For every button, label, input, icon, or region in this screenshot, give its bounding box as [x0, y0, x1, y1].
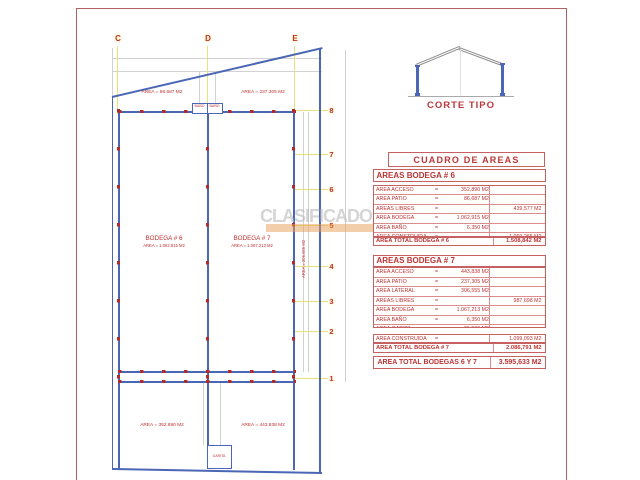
grand-total-value: 3.595,633 M2	[490, 357, 545, 368]
grid-number-6: 6	[325, 185, 338, 194]
table-cell: AREA ACCESO	[374, 269, 434, 275]
bodega-7-total-label: AREA TOTAL BODEGA # 7	[374, 344, 493, 352]
cuadro-de-areas-title: CUADRO DE AREAS	[388, 152, 545, 167]
corte-tipo-title: CORTE TIPO	[408, 100, 514, 111]
table-cell	[489, 186, 545, 195]
table-cell	[489, 224, 545, 233]
site-boundary-left	[112, 97, 113, 469]
banio-right-label: BAÑO	[208, 104, 222, 108]
column-markers-middle	[206, 109, 210, 381]
bodega-7-title: BODEGA # 7	[216, 235, 288, 242]
bodega-6-total-row: AREA TOTAL BODEGA # 6 1.508,842 M2	[373, 237, 546, 247]
table-row: AREA GARITA=25,530 M2	[374, 324, 545, 328]
table-cell: 443,838 M2	[440, 269, 489, 275]
grid-line-3	[295, 301, 328, 302]
table-cell: AREA BODEGA	[374, 215, 434, 221]
table-cell	[489, 306, 545, 315]
table-cell: AREAS LIBRES	[374, 298, 434, 304]
grand-total-row: AREA TOTAL BODEGAS 6 Y 7 3.595,633 M2	[373, 356, 546, 369]
table-cell: 6,350 M2	[440, 317, 489, 323]
table-row: AREA BAÑO=6,350 M2	[374, 223, 545, 233]
grid-letter-c: C	[111, 34, 125, 43]
table-cell: =	[433, 196, 440, 202]
table-cell: AREA PATIO	[374, 279, 434, 285]
table-row: AREA BAÑO=6,350 M2	[374, 315, 545, 325]
table-cell: AREAS LIBRES	[374, 206, 434, 212]
grid-letter-d: D	[201, 34, 215, 43]
area-lateral-label: AREA = 306.555 M2	[302, 233, 307, 285]
bodega-6-table: AREA ACCESO=352,890 M2AREA PATIO=86,687 …	[373, 185, 546, 237]
dimension-extension-line	[215, 72, 216, 103]
dimension-line	[112, 58, 322, 59]
grid-line-e	[294, 46, 295, 114]
column-markers-left	[117, 109, 121, 381]
lateral-strip-line	[308, 112, 309, 372]
garita-label: GARITA	[213, 454, 226, 458]
table-cell: 6,350 M2	[440, 225, 489, 231]
table-cell: =	[433, 298, 440, 304]
table-row: AREA PATIO=237,305 M2	[374, 277, 545, 287]
table-cell	[489, 316, 545, 325]
table-cell	[489, 214, 545, 223]
bodega-6-table-header: AREAS BODEGA # 6	[373, 169, 546, 183]
patio-reference-line	[203, 382, 204, 445]
table-cell: =	[433, 215, 440, 221]
grid-line-6	[295, 189, 328, 190]
table-cell: 1.099,093 M2	[489, 335, 545, 344]
area-patio-7-label: AREA = 237.305 M2	[226, 90, 300, 96]
bodega-6-total-value: 1.508,842 M2	[493, 238, 545, 246]
section-column-right	[501, 64, 504, 95]
site-boundary-right	[319, 49, 321, 473]
banio-left-cell: BAÑO	[193, 104, 208, 113]
table-cell: 25,530 M2	[440, 326, 489, 327]
table-cell: 439,577 M2	[489, 205, 545, 214]
grid-letter-e: E	[288, 34, 302, 43]
table-cell: 352,890 M2	[440, 187, 489, 193]
table-row: AREA LATERAL=306,555 M2	[374, 286, 545, 296]
grid-line-4	[295, 266, 328, 267]
grand-total-label: AREA TOTAL BODEGAS 6 Y 7	[374, 357, 490, 368]
table-cell: =	[433, 206, 440, 212]
table-cell: =	[433, 317, 440, 323]
drawing-page: C D E 8 7 6 5 4 3 2 1 BAÑO BAÑO GARITA A…	[0, 0, 640, 480]
table-cell	[489, 268, 545, 277]
grid-number-4: 4	[325, 262, 338, 271]
grid-number-7: 7	[325, 150, 338, 159]
section-column-right-cap	[500, 63, 505, 66]
area-patio-6-label: AREA = 86.687 M2	[128, 90, 196, 96]
area-acceso-7-label: AREA = 443.838 M2	[226, 423, 300, 429]
patio-reference-line	[220, 382, 221, 445]
grid-line-7	[295, 154, 328, 155]
table-cell: AREA ACCESO	[374, 187, 434, 193]
grid-number-1: 1	[325, 374, 338, 383]
area-acceso-6-label: AREA = 352.890 M2	[128, 423, 196, 429]
section-column-left	[416, 66, 419, 95]
column-markers-right	[292, 109, 296, 381]
table-cell: 987,698 M2	[489, 297, 545, 306]
table-cell: 237,305 M2	[440, 279, 489, 285]
table-cell: =	[433, 225, 440, 231]
bodega-7-total-row: AREA TOTAL BODEGA # 7 2.086,791 M2	[373, 343, 546, 353]
table-cell: 1.067,213 M2	[440, 307, 489, 313]
banio-right-cell: BAÑO	[208, 104, 222, 113]
table-row: AREAS LIBRES=987,698 M2	[374, 296, 545, 306]
table-cell: =	[433, 307, 440, 313]
bodega-6-title: BODEGA # 6	[128, 235, 200, 242]
table-cell: AREA LATERAL	[374, 288, 434, 294]
table-cell: AREA BAÑO	[374, 225, 434, 231]
table-cell	[489, 278, 545, 287]
bodega-7-construida-row: AREA CONSTRUIDA=1.099,093 M2	[373, 334, 546, 344]
table-cell	[489, 195, 545, 204]
table-cell: =	[433, 269, 440, 275]
grid-number-8: 8	[325, 106, 338, 115]
table-cell: =	[433, 326, 440, 327]
bodega-6-total-label: AREA TOTAL BODEGA # 6	[374, 238, 493, 246]
banio-box: BAÑO BAÑO	[192, 103, 223, 114]
grid-line-2	[295, 331, 328, 332]
table-cell: =	[433, 336, 440, 342]
table-row: AREA BODEGA=1.062,915 M2	[374, 213, 545, 223]
table-row: AREA CONSTRUIDA=1.099,093 M2	[374, 335, 545, 344]
garita-box: GARITA	[207, 445, 232, 469]
table-cell: 86,687 M2	[440, 196, 489, 202]
table-cell: AREA CONSTRUIDA	[374, 336, 434, 342]
grid-number-2: 2	[325, 327, 338, 336]
table-row: AREA ACCESO=352,890 M2	[374, 186, 545, 195]
table-cell: =	[433, 279, 440, 285]
bodega-7-table-header: AREAS BODEGA # 7	[373, 255, 546, 268]
grid-line-c	[117, 46, 118, 114]
banio-left-label: BAÑO	[193, 104, 207, 108]
table-cell: =	[433, 187, 440, 193]
section-ground-line	[408, 96, 514, 97]
table-row: AREAS LIBRES=439,577 M2	[374, 204, 545, 214]
table-cell: 1.062,915 M2	[440, 215, 489, 221]
bodega-7-table: AREA ACCESO=443,838 M2AREA PATIO=237,305…	[373, 267, 546, 328]
bodega-6-area-label: AREA = 1.062.915 M2	[128, 244, 200, 249]
grid-number-3: 3	[325, 297, 338, 306]
table-cell: =	[433, 288, 440, 294]
watermark-band	[266, 224, 390, 232]
bodega-7-total-value: 2.086,791 M2	[493, 344, 545, 352]
bodega-7-area-label: AREA = 1.067.213 M2	[216, 244, 288, 249]
dimension-extension-line	[112, 48, 113, 97]
table-cell: AREA PATIO	[374, 196, 434, 202]
section-center-line	[460, 50, 461, 95]
table-cell: AREA BODEGA	[374, 307, 434, 313]
table-row: AREA PATIO=86,687 M2	[374, 194, 545, 204]
table-cell	[489, 325, 545, 328]
section-column-left-cap	[415, 65, 420, 68]
grid-line-1	[295, 378, 328, 379]
table-row: AREA BODEGA=1.067,213 M2	[374, 305, 545, 315]
table-cell	[489, 287, 545, 296]
table-cell: AREA BAÑO	[374, 317, 434, 323]
table-row: AREA ACCESO=443,838 M2	[374, 268, 545, 277]
table-cell: 306,555 M2	[440, 288, 489, 294]
grid-line-8	[295, 110, 328, 111]
table-cell: AREA GARITA	[374, 326, 434, 327]
